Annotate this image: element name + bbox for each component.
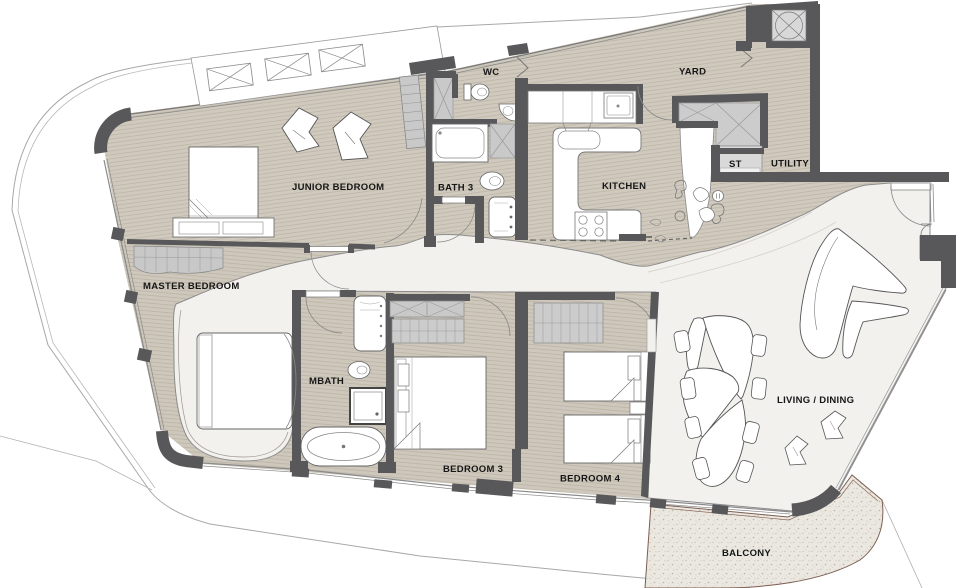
svg-text:ST: ST [729, 159, 742, 170]
svg-text:BALCONY: BALCONY [722, 548, 771, 559]
svg-text:MBATH: MBATH [309, 376, 344, 387]
svg-text:YARD: YARD [679, 67, 706, 78]
svg-text:LIVING / DINING: LIVING / DINING [777, 395, 854, 406]
svg-text:BEDROOM 3: BEDROOM 3 [443, 464, 503, 475]
svg-text:JUNIOR BEDROOM: JUNIOR BEDROOM [292, 182, 384, 193]
svg-text:BATH 3: BATH 3 [438, 183, 473, 194]
svg-text:WC: WC [483, 67, 499, 78]
svg-text:BEDROOM 4: BEDROOM 4 [560, 474, 621, 485]
svg-text:MASTER BEDROOM: MASTER BEDROOM [143, 281, 240, 292]
svg-text:KITCHEN: KITCHEN [602, 181, 646, 192]
svg-text:UTILITY: UTILITY [771, 159, 809, 170]
